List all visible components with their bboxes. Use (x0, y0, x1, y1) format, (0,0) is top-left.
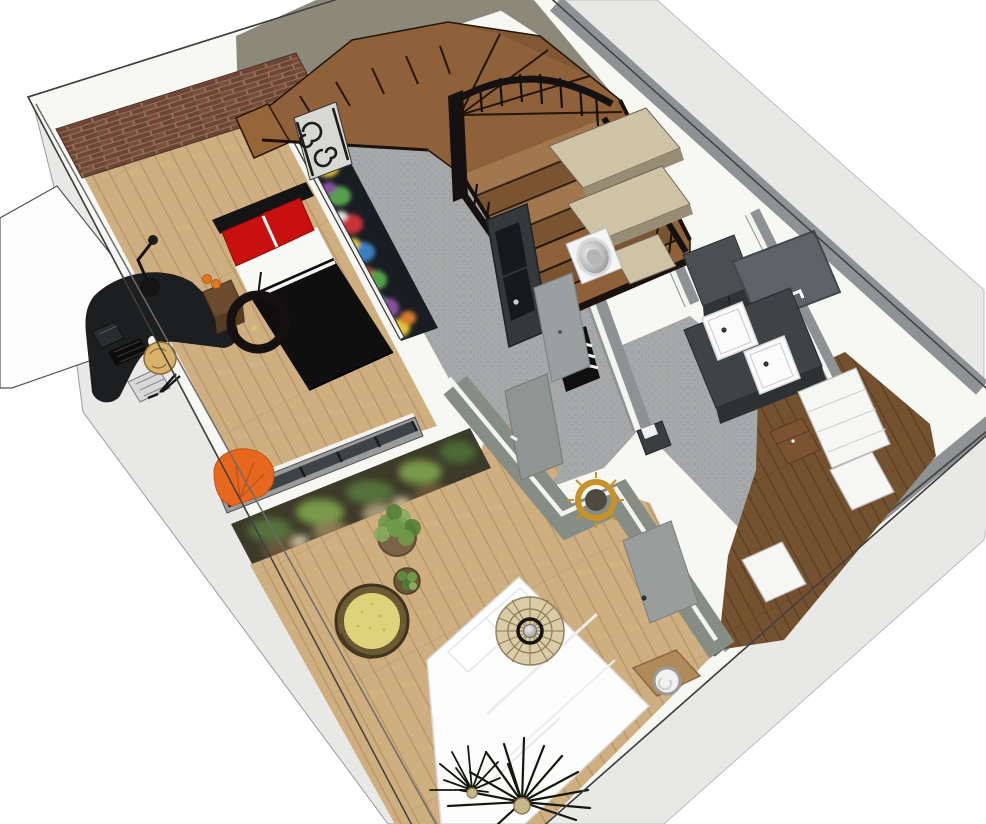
faucet-left (721, 327, 726, 332)
orange-2 (212, 280, 221, 289)
ring-bulb (251, 325, 257, 331)
orange-1 (203, 275, 212, 284)
round-tray (654, 668, 680, 694)
rattan-pendant (496, 597, 564, 665)
entry-door-handle (513, 299, 518, 304)
floor-plan-render (0, 0, 986, 824)
spiky-plant-pot-small (467, 788, 477, 798)
potted-plant-small (394, 568, 420, 594)
floor-plan-canvas (0, 0, 986, 824)
faucet-right (763, 361, 768, 366)
spiky-plant-pot (514, 798, 530, 814)
round-straw-table (336, 585, 408, 657)
hall-door-handle (558, 330, 562, 334)
sliding-door-handle (641, 595, 646, 600)
drawer-knob (791, 439, 794, 442)
gold-sunburst-mirror (568, 472, 624, 528)
